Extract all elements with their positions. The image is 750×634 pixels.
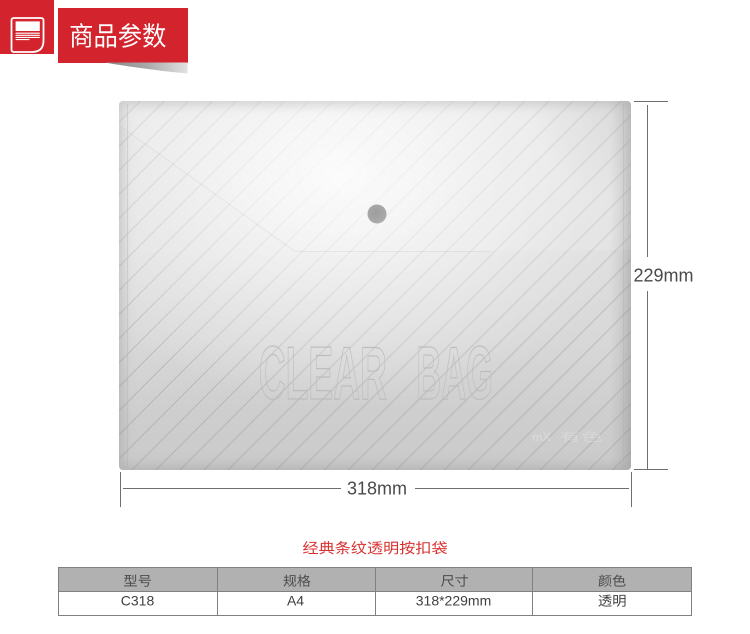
svg-text:A4: A4 (287, 593, 304, 609)
svg-text:318mm: 318mm (347, 479, 407, 499)
svg-text:318*229mm: 318*229mm (416, 593, 492, 609)
svg-text:229mm: 229mm (634, 266, 694, 286)
svg-text:BAG: BAG (417, 331, 494, 415)
svg-text:C318: C318 (121, 593, 155, 609)
svg-text:CLEAR: CLEAR (259, 331, 387, 415)
svg-text:mX: mX (532, 430, 551, 444)
